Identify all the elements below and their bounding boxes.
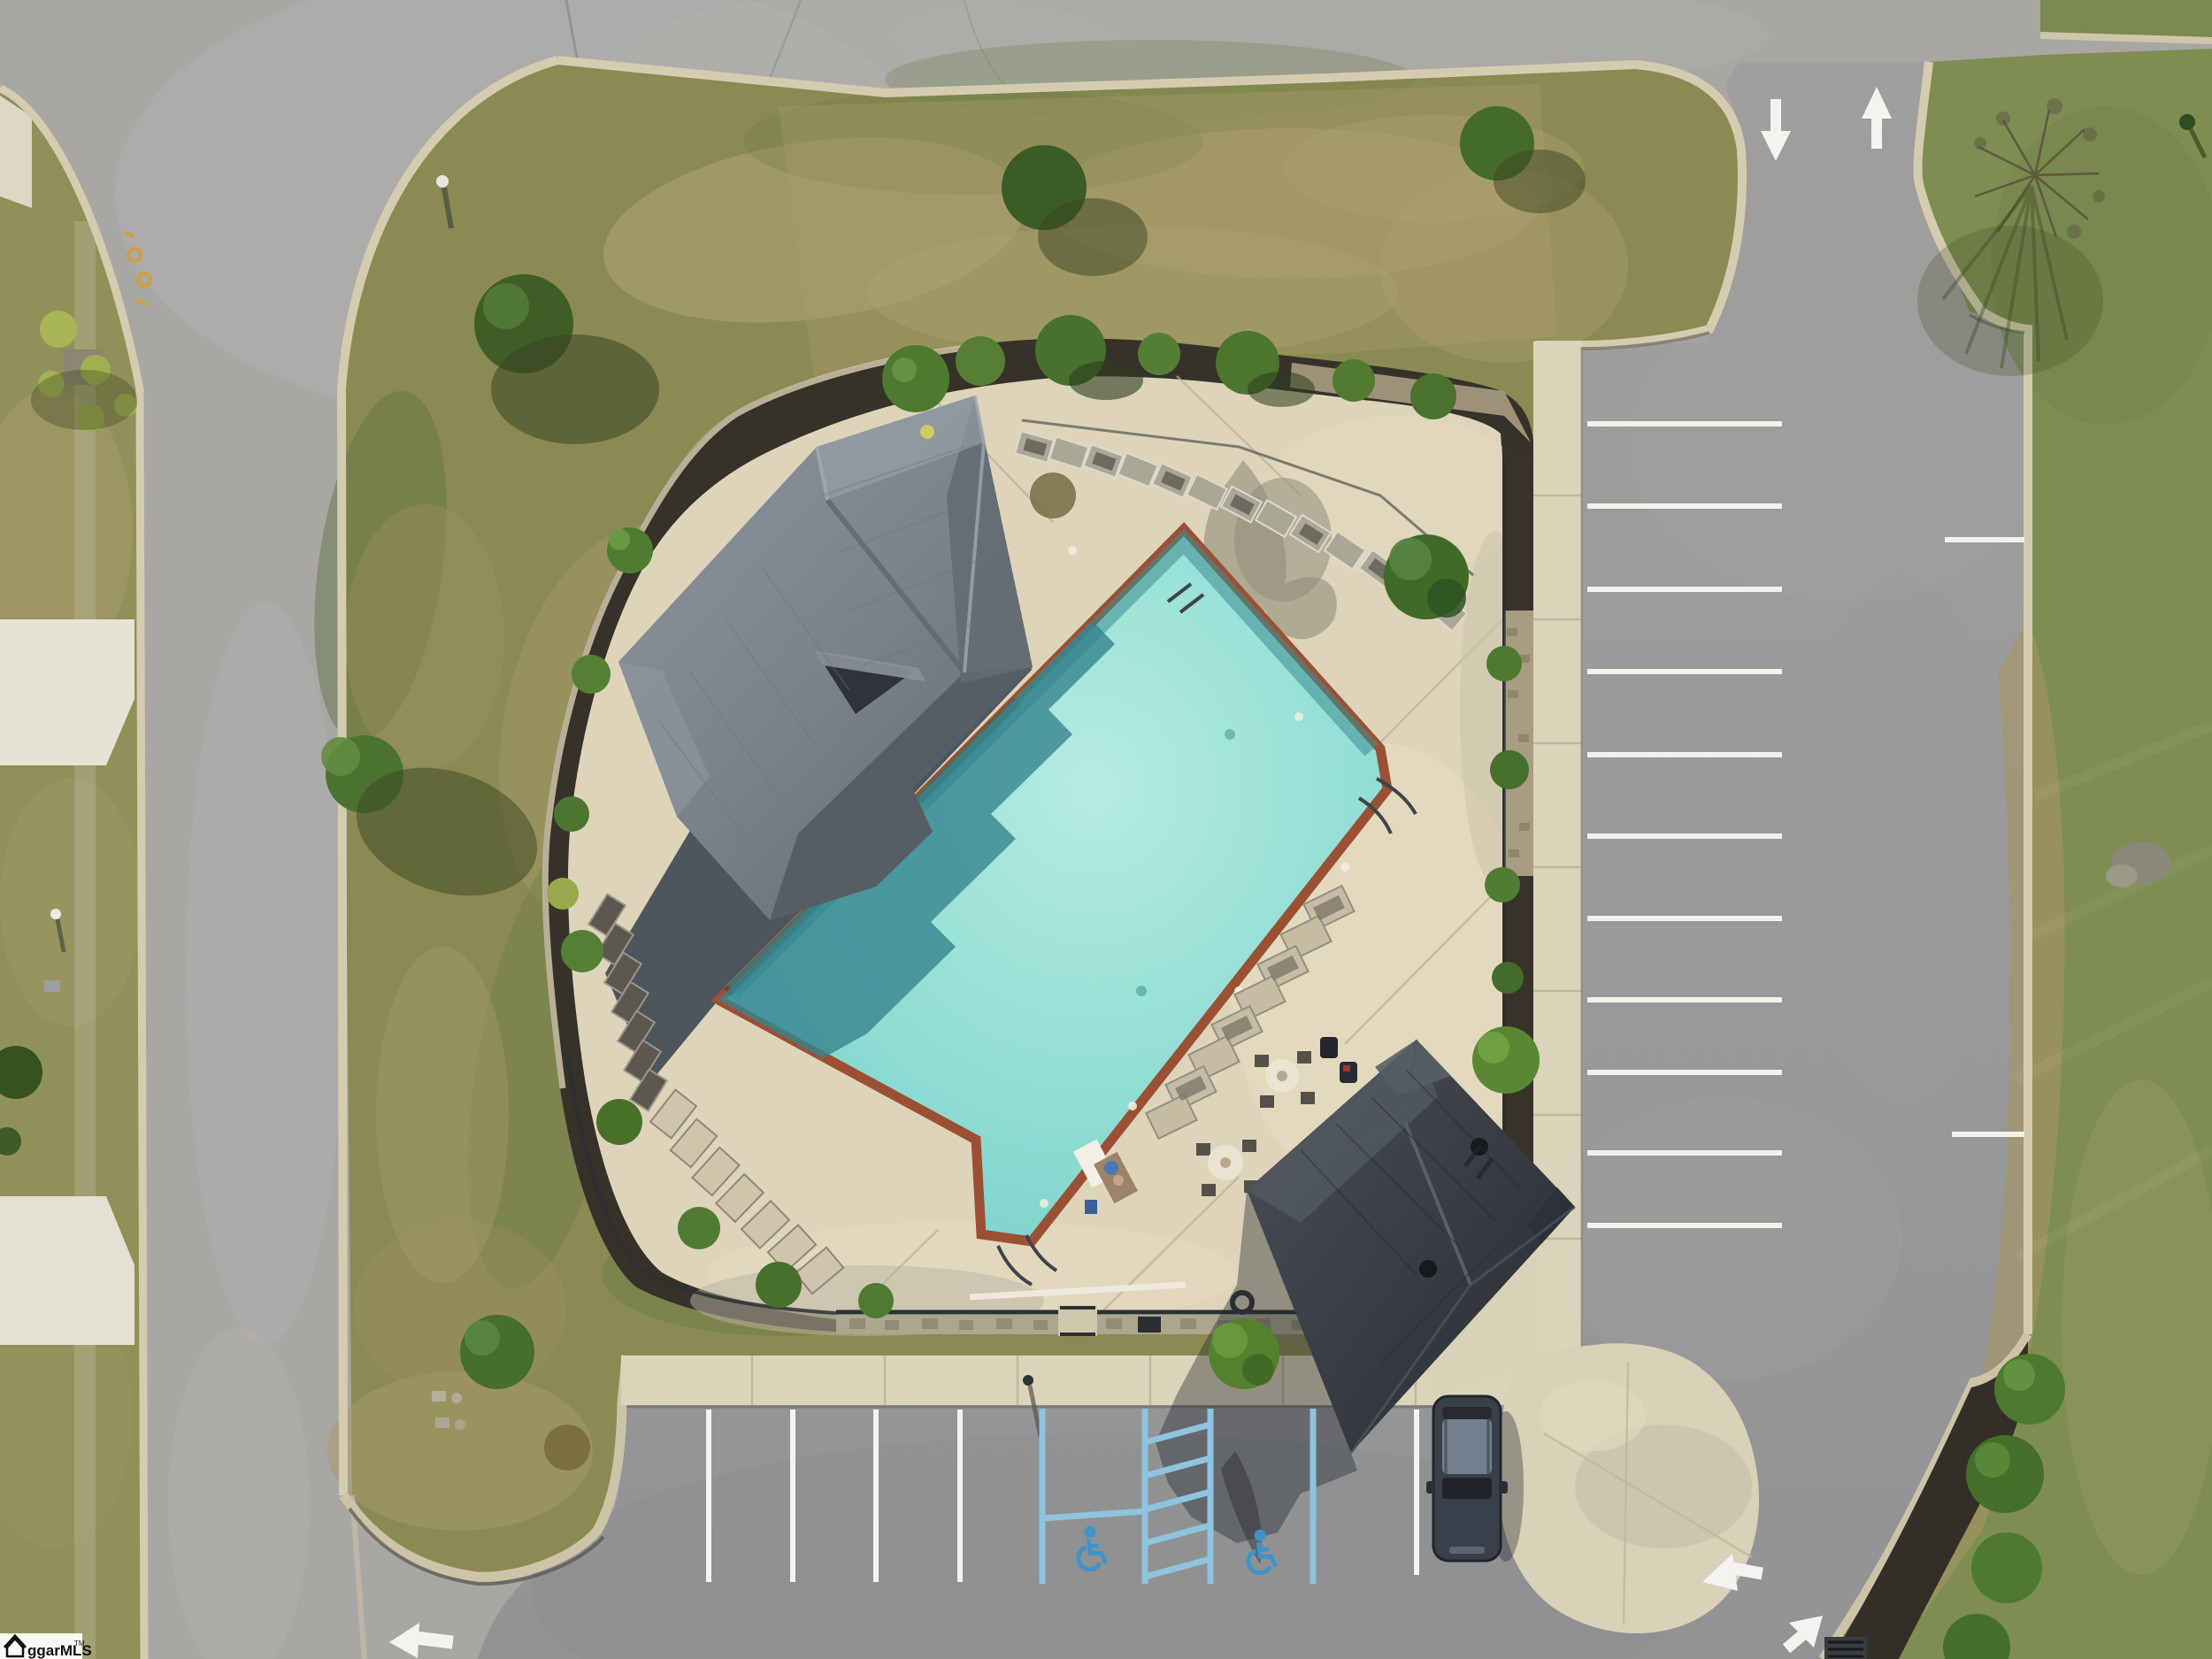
svg-text:TM: TM [74, 1640, 85, 1647]
